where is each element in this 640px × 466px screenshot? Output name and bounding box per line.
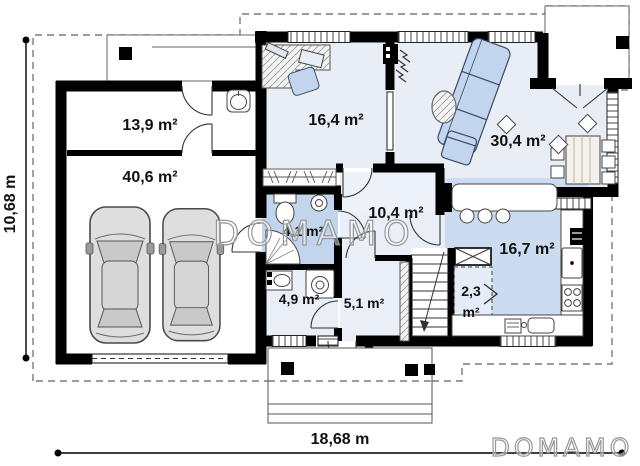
label-kitchen: 16,7 m² [499, 241, 554, 258]
dishwasher [505, 319, 521, 333]
label-entry: 5,1 m² [344, 295, 385, 311]
label-office: 16,4 m² [308, 112, 363, 129]
rug [432, 91, 456, 123]
porch-column [281, 362, 294, 375]
label-pantry-unit: m² [462, 304, 479, 320]
sliding-door [387, 92, 393, 150]
floor-plan-page: 13,9 m² 40,6 m² 16,4 m² 30,4 m² 4,1 m² 1… [0, 0, 640, 466]
terrace [545, 6, 629, 88]
chair [602, 172, 615, 184]
label-laundry: 4,9 m² [279, 291, 320, 307]
porch [268, 348, 435, 423]
bar-stool [460, 209, 474, 223]
bar-counter [452, 184, 557, 211]
bar-stool [496, 209, 510, 223]
window-dining [553, 198, 591, 209]
kitchen-sink [528, 318, 554, 333]
floor-plan: 13,9 m² 40,6 m² 16,4 m² 30,4 m² 4,1 m² 1… [0, 0, 640, 466]
window-kitchen [500, 336, 556, 347]
chimney [119, 47, 132, 60]
porch-column [405, 364, 418, 376]
porch-column [424, 364, 435, 375]
kitchen-radiator [570, 228, 584, 245]
stairs-rail [400, 262, 409, 341]
chair [551, 166, 564, 178]
garage-cars [86, 207, 224, 343]
window-office [288, 32, 350, 43]
terrace-column [616, 36, 629, 49]
window-laundry [272, 336, 306, 347]
chair [602, 140, 615, 152]
window-living-2 [488, 32, 535, 43]
sink-storage [227, 90, 250, 112]
dimension-left: 10,68 m [2, 37, 30, 362]
window-living-east [607, 92, 618, 184]
width-dimension: 18,68 m [311, 431, 370, 448]
watermark-corner: DOMAMO [491, 433, 634, 462]
label-storage: 13,9 m² [122, 117, 177, 134]
label-garage: 40,6 m² [122, 169, 177, 186]
bar-stool [478, 209, 492, 223]
watermark-center: DOMAMO [213, 214, 417, 254]
car-1 [86, 207, 154, 343]
height-dimension: 10,68 m [2, 175, 19, 234]
chair [602, 156, 615, 168]
window-living-1 [398, 32, 468, 43]
label-pantry-value: 2,3 [461, 283, 481, 299]
label-living: 30,4 m² [490, 133, 545, 150]
